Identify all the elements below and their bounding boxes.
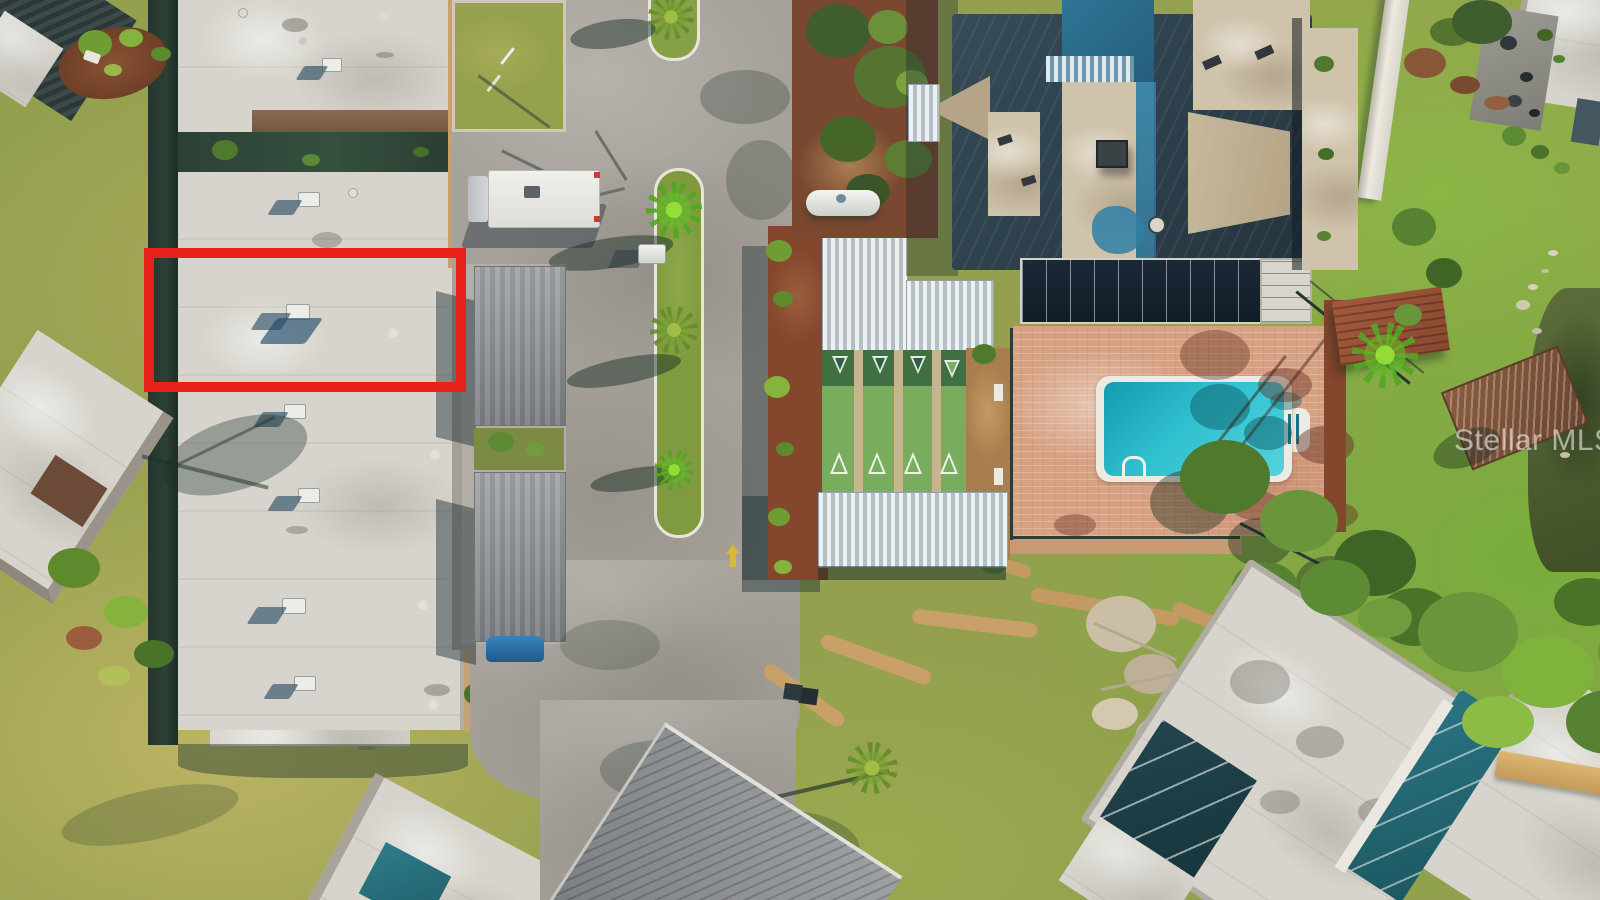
tree-canopy	[868, 10, 908, 44]
grass-island	[452, 0, 566, 132]
clubhouse-east-hip	[1188, 112, 1290, 234]
shuffleboard-awning-north	[906, 280, 994, 352]
mulch-bed-right	[1404, 48, 1446, 78]
golf-cart	[638, 244, 666, 264]
shuffleboard-awning-north	[822, 236, 908, 352]
hedge-row-right	[1502, 126, 1526, 146]
carport-south	[474, 472, 566, 642]
roof-vents	[348, 188, 358, 198]
shuffleboard-awning-south	[818, 492, 1008, 568]
annex-hedges	[1314, 56, 1334, 72]
clubhouse-blue-patch	[1092, 206, 1144, 254]
shoreline-rocks	[1516, 300, 1530, 310]
tree-canopy	[1418, 592, 1518, 672]
carport-gap-grass	[474, 428, 564, 470]
carport-north	[474, 266, 566, 426]
mls-watermark: Stellar MLS	[1454, 424, 1600, 458]
truck-tail-lights	[594, 172, 600, 178]
roof-vents	[238, 8, 248, 18]
shuffleboard-hedges	[766, 240, 792, 262]
pool-fence-south	[1010, 536, 1240, 539]
solar-panel-array	[1020, 258, 1262, 324]
tree-shadow	[700, 70, 790, 124]
awning-south-shadow	[818, 566, 1006, 580]
building-b-south-shadow	[178, 744, 468, 778]
tree-canopy	[806, 4, 870, 58]
boundary-wall	[1357, 0, 1410, 201]
pool-fence-west	[1010, 328, 1013, 540]
patio-furniture	[1500, 36, 1517, 50]
sidewalk	[819, 633, 933, 687]
subject-unit-outline	[144, 248, 466, 392]
clubhouse-striped-section	[1046, 56, 1134, 82]
court-benches	[994, 384, 1003, 401]
truck-roof-hatch	[524, 186, 540, 198]
sidewalk	[912, 608, 1039, 638]
tree-shadow	[726, 140, 796, 220]
roof-gap-shadow	[1292, 18, 1302, 270]
lawn-shadow	[57, 772, 243, 858]
tank-valve	[836, 194, 846, 203]
pool-handrail	[1122, 456, 1146, 479]
aerial-photo: Stellar MLS	[0, 0, 1600, 900]
left-garden-plants	[48, 548, 100, 588]
roof-vent-round	[1148, 216, 1166, 234]
tree-canopy	[1452, 0, 1512, 44]
gap-hedges	[212, 140, 238, 160]
roof-stains	[1230, 660, 1290, 704]
ac-unit	[282, 598, 306, 614]
roof-stains	[312, 232, 342, 248]
truck-cab	[468, 176, 488, 222]
box-truck	[488, 170, 600, 228]
tree-canopy	[1300, 560, 1370, 616]
tree-shadow	[560, 620, 660, 670]
pool-ladder	[1288, 414, 1291, 444]
trash-bins	[783, 683, 803, 701]
palm-tree	[843, 739, 902, 798]
roof-stains	[282, 18, 308, 32]
court-dividers	[854, 350, 863, 492]
blue-car	[486, 636, 544, 662]
tree-canopy	[1392, 208, 1436, 246]
clubhouse-west-awning	[908, 84, 940, 142]
clubhouse-flat-roof-west	[988, 112, 1040, 216]
tree-shadow-on-water	[1190, 384, 1250, 430]
roof-vent-box	[1096, 140, 1128, 168]
court-end-hedges	[972, 344, 996, 364]
tree-canopy	[1180, 440, 1270, 514]
gap-bushes	[488, 432, 514, 452]
road-arrow-stem	[730, 553, 736, 567]
tree-shadow-on-deck	[1180, 330, 1250, 380]
carport-shadow	[436, 499, 476, 665]
